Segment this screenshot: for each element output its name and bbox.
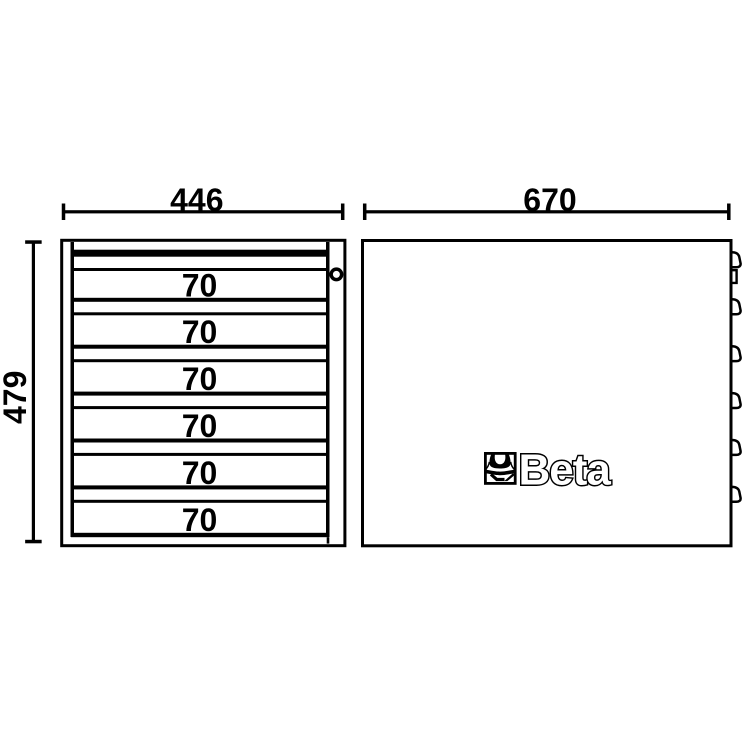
svg-text:70: 70 [182,502,218,538]
svg-text:Beta: Beta [519,446,612,495]
svg-text:479: 479 [0,371,33,424]
